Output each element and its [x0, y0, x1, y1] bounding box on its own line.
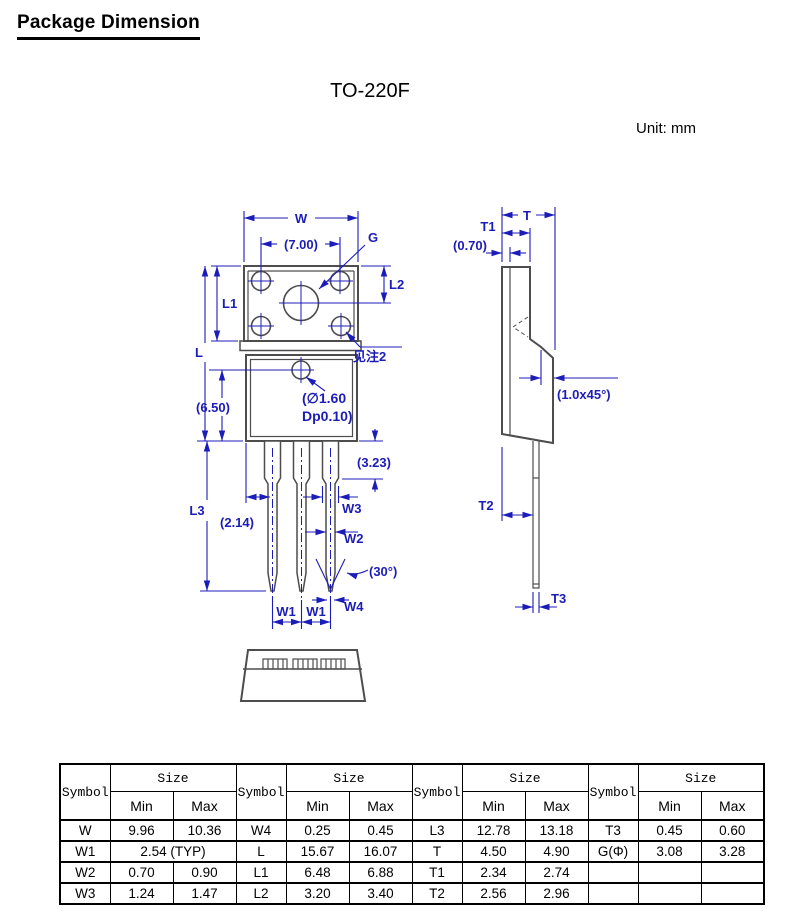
dim-label-note2: 见注2: [353, 349, 386, 364]
header-symbol: Symbol: [236, 764, 286, 820]
min-cell: [638, 883, 701, 904]
symbol-cell: [588, 862, 638, 883]
table-row: W1 2.54 (TYP) L 15.67 16.07 T 4.50 4.90 …: [60, 841, 764, 862]
min-cell: 12.78: [462, 820, 525, 841]
dim-label-hole-dia: (∅1.60: [302, 390, 346, 406]
symbol-cell: T2: [412, 883, 462, 904]
max-cell: 2.96: [525, 883, 588, 904]
symbol-cell: W1: [60, 841, 110, 862]
table-row: W3 1.24 1.47 L2 3.20 3.40 T2 2.56 2.96: [60, 883, 764, 904]
header-symbol: Symbol: [588, 764, 638, 820]
max-cell: 4.90: [525, 841, 588, 862]
side-view: T T1 (0.70) (1.0x45°) T2: [453, 207, 618, 613]
max-cell: 13.18: [525, 820, 588, 841]
dim-label-l3: L3: [189, 503, 204, 518]
dim-label-t3: T3: [551, 591, 566, 606]
dim-label-chamfer: (1.0x45°): [557, 387, 611, 402]
symbol-cell: L: [236, 841, 286, 862]
header-size: Size: [638, 764, 764, 792]
dim-label-l2: L2: [389, 277, 404, 292]
symbol-cell: L2: [236, 883, 286, 904]
min-cell: 0.45: [638, 820, 701, 841]
header-min: Min: [286, 792, 349, 821]
dim-label-g: G: [368, 230, 378, 245]
size-span-cell: 2.54 (TYP): [110, 841, 236, 862]
min-cell: 4.50: [462, 841, 525, 862]
max-cell: 16.07: [349, 841, 412, 862]
front-pins: [265, 441, 339, 599]
symbol-cell: [588, 883, 638, 904]
min-cell: 2.34: [462, 862, 525, 883]
min-cell: 1.24: [110, 883, 173, 904]
max-cell: 3.28: [701, 841, 764, 862]
max-cell: [701, 862, 764, 883]
symbol-cell: W: [60, 820, 110, 841]
header-min: Min: [110, 792, 173, 821]
header-min: Min: [638, 792, 701, 821]
dim-label-w3: W3: [342, 501, 362, 516]
dim-label-hole-depth: Dp0.10): [302, 408, 353, 424]
symbol-cell: G(Φ): [588, 841, 638, 862]
max-cell: 0.90: [173, 862, 236, 883]
header-max: Max: [173, 792, 236, 821]
min-cell: 6.48: [286, 862, 349, 883]
max-cell: 10.36: [173, 820, 236, 841]
dim-label-0-70: (0.70): [453, 238, 487, 253]
table-row: W 9.96 10.36 W4 0.25 0.45 L3 12.78 13.18…: [60, 820, 764, 841]
header-min: Min: [462, 792, 525, 821]
datasheet-page: Package Dimension TO-220F Unit: mm: [0, 0, 797, 911]
min-cell: 2.56: [462, 883, 525, 904]
max-cell: 0.60: [701, 820, 764, 841]
mounting-holes: [248, 268, 354, 383]
max-cell: 2.74: [525, 862, 588, 883]
dim-label-l: L: [195, 345, 203, 360]
dim-label-w2: W2: [344, 531, 364, 546]
front-view: W (7.00) G L2 L1: [189, 211, 404, 629]
symbol-cell: W4: [236, 820, 286, 841]
header-size: Size: [110, 764, 236, 792]
max-cell: 6.88: [349, 862, 412, 883]
header-max: Max: [349, 792, 412, 821]
dim-label-w: W: [295, 211, 308, 226]
header-symbol: Symbol: [60, 764, 110, 820]
dim-label-3-23: (3.23): [357, 455, 391, 470]
dim-label-w1-left: W1: [276, 604, 296, 619]
dim-label-l1: L1: [222, 296, 237, 311]
min-cell: 15.67: [286, 841, 349, 862]
min-cell: [638, 862, 701, 883]
header-symbol: Symbol: [412, 764, 462, 820]
symbol-cell: L3: [412, 820, 462, 841]
min-cell: 9.96: [110, 820, 173, 841]
bottom-view-pin-ribs: [263, 659, 345, 669]
dimension-table: Symbol Size Symbol Size Symbol Size Symb…: [59, 763, 765, 905]
max-cell: 1.47: [173, 883, 236, 904]
side-dimensions: T T1 (0.70) (1.0x45°) T2: [453, 207, 618, 613]
min-cell: 0.25: [286, 820, 349, 841]
dim-label-w4: W4: [344, 599, 364, 614]
header-size: Size: [286, 764, 412, 792]
symbol-cell: T: [412, 841, 462, 862]
dim-label-w1-right: W1: [306, 604, 326, 619]
min-cell: 3.20: [286, 883, 349, 904]
max-cell: 3.40: [349, 883, 412, 904]
header-max: Max: [525, 792, 588, 821]
max-cell: 0.45: [349, 820, 412, 841]
table-row: W2 0.70 0.90 L1 6.48 6.88 T1 2.34 2.74: [60, 862, 764, 883]
symbol-cell: T3: [588, 820, 638, 841]
symbol-cell: W3: [60, 883, 110, 904]
bottom-view: [241, 650, 365, 701]
dim-label-t: T: [523, 208, 531, 223]
dim-label-t2: T2: [478, 498, 493, 513]
dim-label-2-14: (2.14): [220, 515, 254, 530]
dim-label-7-00: (7.00): [284, 237, 318, 252]
min-cell: 3.08: [638, 841, 701, 862]
dim-label-t1: T1: [480, 219, 495, 234]
header-max: Max: [701, 792, 764, 821]
dim-label-30deg: (30°): [369, 564, 397, 579]
max-cell: [701, 883, 764, 904]
dim-label-6-50: (6.50): [196, 400, 230, 415]
header-size: Size: [462, 764, 588, 792]
symbol-cell: L1: [236, 862, 286, 883]
min-cell: 0.70: [110, 862, 173, 883]
symbol-cell: W2: [60, 862, 110, 883]
symbol-cell: T1: [412, 862, 462, 883]
